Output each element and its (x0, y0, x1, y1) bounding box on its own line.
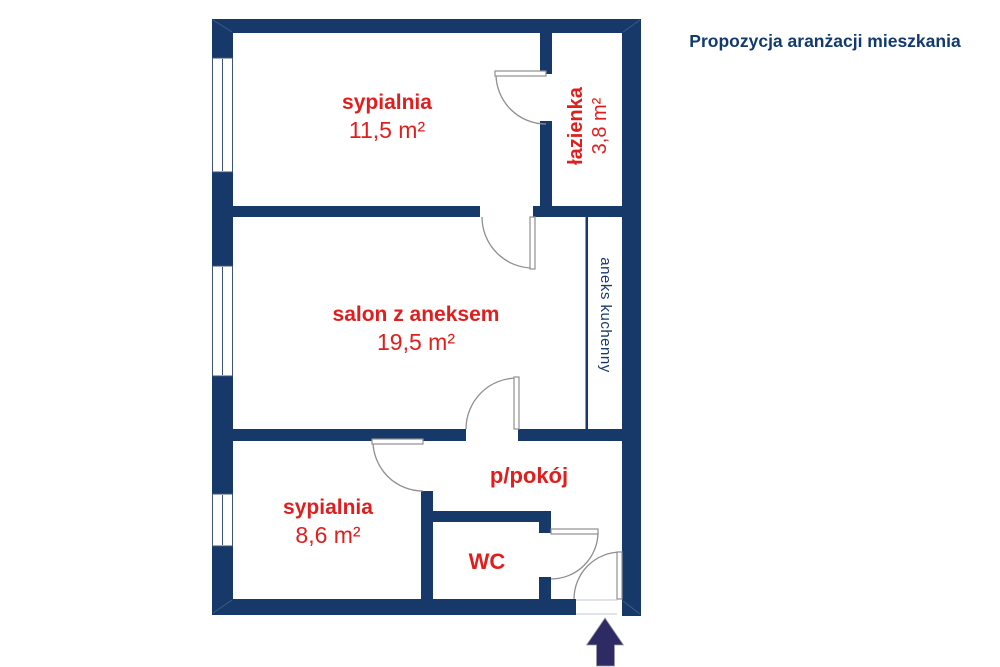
wall-bathroom-salon (533, 206, 622, 217)
room-area: 3,8 m² (588, 66, 613, 186)
room-name: łazienka (564, 66, 588, 186)
wall-wc-right-lower (539, 577, 551, 599)
room-name: p/pokój (429, 463, 629, 489)
wall-salon-bedroom2 (233, 429, 466, 441)
door-arc-bathroom (496, 74, 546, 124)
door-arc-bedroom1-salon (482, 217, 533, 268)
room-name: sypialnia (228, 495, 428, 521)
room-area: 19,5 m² (316, 328, 516, 357)
wall-salon-hallway (518, 429, 622, 441)
wall-wc-top (433, 511, 551, 522)
entrance-up-arrow-icon (587, 618, 624, 666)
wall-bottom (212, 599, 576, 615)
kitchen-annex-divider (586, 217, 589, 429)
wall-bedroom1-salon (233, 206, 480, 217)
door-leaf-wc (551, 529, 598, 534)
room-name: WC (387, 549, 587, 575)
wall-wc-right-upper (539, 522, 551, 533)
room-label-hallway: p/pokój (429, 463, 629, 489)
room-label-kitchen-annex: aneks kuchenny (594, 240, 614, 390)
door-leaf-salon-hallway (514, 377, 519, 429)
room-area: 11,5 m² (287, 116, 487, 145)
wall-bedroom1-bathroom-upper (540, 33, 552, 74)
room-label-bedroom1: sypialnia 11,5 m² (287, 90, 487, 145)
wall-right (622, 19, 641, 616)
door-leaf-bedroom1-salon (530, 217, 535, 269)
room-area: 8,6 m² (228, 521, 428, 550)
room-label-salon: salon z aneksem 19,5 m² (316, 302, 516, 357)
door-leaf-entrance (617, 552, 622, 599)
door-arc-salon-hallway (466, 378, 517, 429)
door-leaf-bedroom2 (372, 439, 423, 444)
room-label-bedroom2: sypialnia 8,6 m² (228, 495, 428, 550)
room-label-wc: WC (387, 549, 587, 575)
door-arc-bedroom2 (373, 441, 423, 491)
room-name: sypialnia (287, 90, 487, 116)
page-title: Propozycja aranżacji mieszkania (660, 31, 990, 52)
wall-top (212, 19, 641, 33)
floor-plan: Propozycja aranżacji mieszkania sypialni… (0, 0, 1000, 667)
wall-bedroom1-bathroom-lower (540, 121, 552, 206)
door-leaf-bathroom (495, 71, 546, 76)
room-name: salon z aneksem (316, 302, 516, 328)
room-label-bathroom: łazienka 3,8 m² (564, 66, 614, 186)
